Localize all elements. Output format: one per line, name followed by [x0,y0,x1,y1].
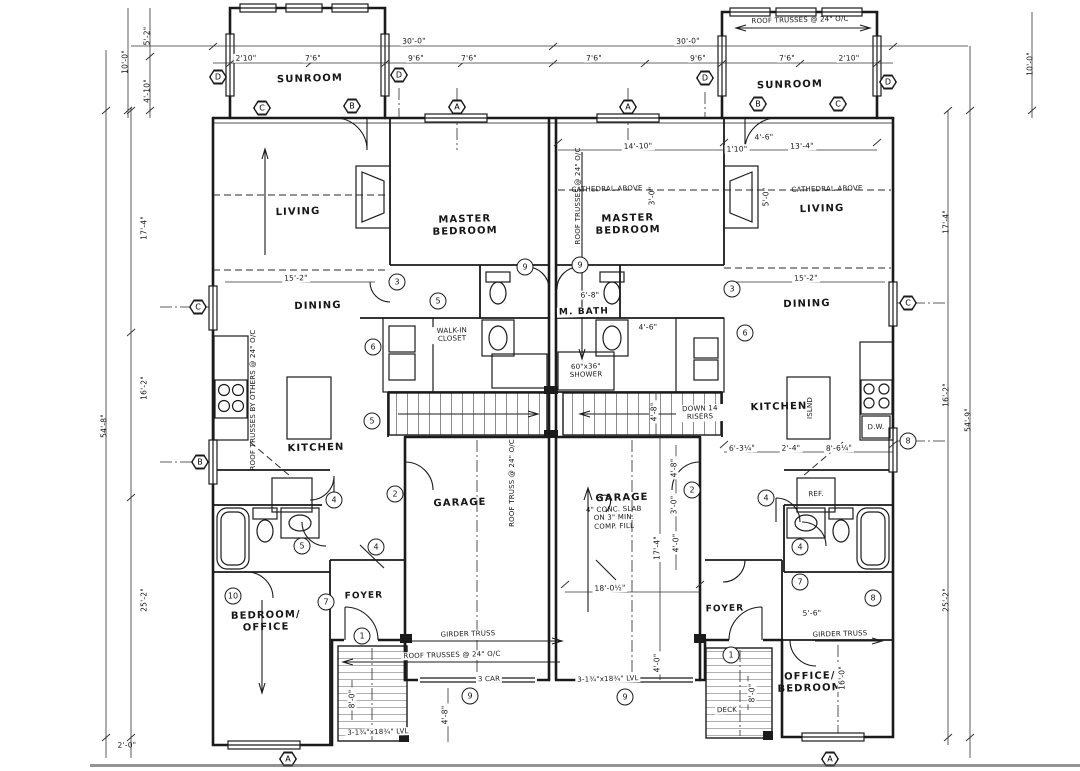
dim-7-6-l1: 7'6" [303,53,323,63]
dim-4-10: 4'-10" [143,79,152,103]
dim-8-0-de ck-left: 8'-0" [348,688,357,711]
door-marker-6: 6 [737,325,754,342]
note-refrigerator: REF. [806,490,825,499]
room-label-office-bedroom: OFFICE/ BEDROOM [775,670,846,696]
dim-15-2-right: 15'-2" [792,273,820,283]
dim-9-6-right: 9'6" [688,53,708,63]
dim-8-0-deck-right: 8'-0" [748,682,757,705]
dim-17-4-right: 17'-4" [942,210,951,234]
floorplan-linework [0,0,1080,771]
dim-7-6-l2: 7'6" [459,53,479,63]
dim-30-0-left: 30'-0" [400,36,428,46]
type-marker-C: C [899,296,917,311]
room-label-walkin-closet: WALK-IN CLOSET [424,326,480,344]
note-shower-size: 60"x36" SHOWER [562,362,610,380]
door-marker-7: 7 [318,594,335,611]
dim-30-0-right: 30'-0" [674,36,702,46]
type-marker-B: B [191,455,209,470]
dim-17-4-garage: 17'-4" [653,534,662,562]
type-marker-D: D [879,75,897,90]
room-label-garage-left: GARAGE [433,497,486,509]
room-label-deck: DECK [715,706,739,715]
dim-25-2-right: 25'-2" [942,588,951,612]
note-island: ISLND [806,397,814,419]
room-label-foyer-left: FOYER [345,590,384,601]
room-label-kitchen-right: KITCHEN [750,401,807,413]
room-label-kitchen-left: KITCHEN [287,442,344,454]
dim-8-6q: 8'-6¼" [824,443,854,453]
dim-5-2: 5'-2" [143,27,152,46]
type-marker-D: D [696,71,714,86]
dim-3-0-master: 3'-0" [648,187,657,206]
dim-5-6: 5'-6" [801,608,824,618]
room-label-master-right: MASTER BEDROOM [595,212,662,238]
dim-16-0-office: 16'-0" [838,664,847,692]
dim-7-6-r1: 7'6" [584,53,604,63]
type-marker-A: A [448,100,466,115]
dim-5-0: 5'-0" [762,188,771,207]
door-marker-4: 4 [326,492,343,509]
dim-3-0-garage: 3'-0" [670,494,679,517]
door-marker-1: 1 [354,628,371,645]
type-marker-B: B [343,99,361,114]
door-marker-10: 10 [225,588,242,605]
room-label-master-bath: M. BATH [557,306,611,317]
dim-54-8: 54'-8" [100,414,109,438]
dim-4-8-garage: 4'-8" [670,457,679,480]
dim-16-2-right: 16'-2" [942,383,951,407]
dim-7-6-r2: 7'6" [777,53,797,63]
door-marker-3: 3 [724,281,741,298]
dim-2-0: 2'-0" [118,740,137,749]
dim-10-0-right: 10'-0" [1026,52,1035,76]
door-marker-5: 5 [364,413,381,430]
dim-25-2-left: 25'-2" [140,588,149,612]
room-label-master-left: MASTER BEDROOM [432,213,499,239]
dim-4-8-deck: 4'-8" [441,704,450,727]
door-marker-4: 4 [368,539,385,556]
dim-2-4: 2'-4" [780,443,803,453]
door-marker-9: 9 [572,257,589,274]
note-roof-trusses-by-others: ROOF TRUSSES BY OTHERS @ 24" O/C [249,329,257,470]
type-marker-A: A [619,100,637,115]
door-marker-2: 2 [387,486,404,503]
door-marker-5: 5 [430,293,447,310]
note-lvl-left: 3-1¾"x18¾" LVL [345,727,411,737]
type-marker-B: B [749,97,767,112]
door-marker-7: 7 [792,574,809,591]
room-label-dining-right: DINING [783,298,831,310]
door-marker-4: 4 [792,539,809,556]
type-marker-D: D [390,68,408,83]
door-marker-4: 4 [758,490,775,507]
note-girder-truss-left: GIRDER TRUSS [438,629,497,639]
note-down-risers: DOWN 14 RISERS [676,404,724,422]
door-marker-9: 9 [462,688,479,705]
note-conc-slab: 4" CONC. SLAB ON 3" MIN. COMP. FILL [583,505,646,532]
note-dishwasher: D.W. [866,423,887,432]
note-girder-truss-right: GIRDER TRUSS [810,629,869,639]
dim-2-10-right: 2'10" [836,53,861,63]
door-marker-1: 1 [723,647,740,664]
door-marker-2: 2 [684,482,701,499]
floorplan-page: SUNROOM SUNROOM LIVING LIVING MASTER BED… [0,0,1080,771]
room-label-living-left: LIVING [275,206,320,218]
note-roof-truss-garage: ROOF TRUSS @ 24" O/C [508,439,516,527]
dim-2-10-left: 2'10" [233,53,258,63]
dim-6-8: 6'-8" [579,290,602,300]
type-marker-C: C [253,101,271,116]
room-label-living-right: LIVING [799,203,844,215]
scan-edge-artifact [90,764,1080,767]
door-marker-9: 9 [617,689,634,706]
dim-4-6-fireplace: 4'-6" [753,132,776,142]
room-label-sunroom-right: SUNROOM [757,79,823,92]
type-marker-C: C [829,97,847,112]
dim-13-4: 13'-4" [788,141,816,151]
room-label-foyer-right: FOYER [706,603,745,614]
dim-4-6-bath: 4'-6" [637,322,660,332]
room-label-bedroom-office: BEDROOM/ OFFICE [226,609,307,635]
note-lvl-center: 3-1¾"x18¾" LVL [575,674,641,684]
note-roof-trusses-master: ROOF TRUSSES @ 24" O/C [574,147,582,244]
dim-18-0-half: 18'-0½" [592,583,627,593]
door-marker-3: 3 [389,274,406,291]
type-marker-D: D [209,70,227,85]
door-marker-5: 5 [294,538,311,555]
note-3-car: 3 CAR [476,675,502,684]
dim-1-10: 1'10" [724,144,749,154]
room-label-dining-left: DINING [294,300,342,312]
dim-14-10: 14'-10" [622,141,655,151]
dim-6-3q: 6'-3¼" [727,443,757,453]
door-marker-8: 8 [865,590,882,607]
type-marker-C: C [189,300,207,315]
dim-4-0-garage: 4'-0" [672,532,681,555]
dim-15-2-left: 15'-2" [282,273,310,283]
room-label-sunroom-left: SUNROOM [277,73,343,86]
door-marker-6: 6 [365,339,382,356]
door-marker-9: 9 [517,259,534,276]
room-label-garage-right: GARAGE [595,492,648,504]
dim-10-0-left: 10'-0" [121,50,130,74]
dim-4-8-stairs: 4'-8" [650,401,659,424]
dim-17-4-left: 17'-4" [140,216,149,240]
dim-54-9: 54'-9" [964,408,973,432]
dim-9-6-left: 9'6" [406,53,426,63]
dim-16-2-left: 16'-2" [140,376,149,400]
dim-4-0-foyer: 4'-0" [653,652,662,675]
door-marker-8: 8 [900,433,917,450]
